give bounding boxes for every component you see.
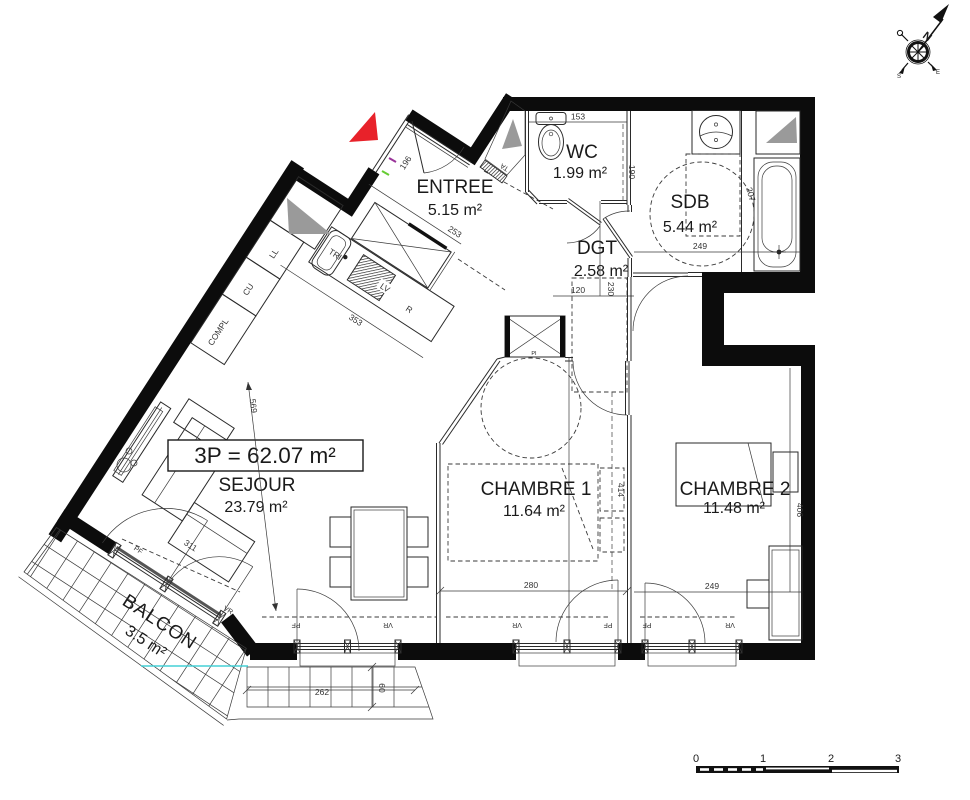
svg-text:11.64 m²: 11.64 m²: [503, 503, 566, 520]
svg-text:2: 2: [828, 753, 834, 765]
svg-text:120: 120: [571, 285, 585, 295]
svg-text:3: 3: [895, 753, 901, 765]
svg-text:3P = 62.07 m²: 3P = 62.07 m²: [194, 443, 336, 468]
svg-text:414: 414: [616, 483, 626, 497]
svg-text:PF: PF: [292, 621, 301, 628]
svg-text:406: 406: [795, 503, 805, 517]
svg-text:VR: VR: [383, 621, 393, 628]
svg-text:WC: WC: [566, 142, 598, 163]
svg-text:SDB: SDB: [670, 192, 709, 213]
svg-text:1.99 m²: 1.99 m²: [553, 165, 608, 182]
svg-text:E: E: [936, 70, 940, 76]
svg-text:2.58 m²: 2.58 m²: [574, 263, 629, 280]
svg-text:PF: PF: [643, 621, 652, 628]
svg-text:1: 1: [760, 753, 766, 765]
svg-text:190: 190: [627, 165, 637, 179]
svg-text:249: 249: [693, 241, 707, 251]
svg-text:11.48 m²: 11.48 m²: [703, 500, 766, 517]
svg-text:153: 153: [571, 112, 585, 122]
svg-text:569: 569: [248, 398, 260, 414]
svg-text:CHAMBRE 1: CHAMBRE 1: [481, 479, 592, 500]
svg-text:PF: PF: [604, 621, 613, 628]
svg-text:280: 280: [524, 580, 538, 590]
svg-text:5.44 m²: 5.44 m²: [663, 219, 718, 236]
svg-text:23.79 m²: 23.79 m²: [224, 499, 288, 516]
svg-text:230: 230: [606, 282, 616, 296]
svg-text:249: 249: [705, 581, 719, 591]
svg-text:0: 0: [693, 753, 699, 765]
svg-text:DGT: DGT: [577, 238, 618, 259]
svg-text:S: S: [897, 74, 901, 80]
svg-text:262: 262: [315, 687, 329, 697]
svg-text:SEJOUR: SEJOUR: [218, 475, 295, 496]
svg-text:60: 60: [377, 683, 387, 693]
svg-text:ENTREE: ENTREE: [416, 177, 493, 198]
svg-text:5.15 m²: 5.15 m²: [428, 202, 483, 219]
svg-text:VR: VR: [725, 621, 735, 628]
svg-text:PI: PI: [531, 351, 537, 357]
svg-text:VR: VR: [512, 621, 522, 628]
svg-text:CHAMBRE 2: CHAMBRE 2: [680, 479, 791, 500]
